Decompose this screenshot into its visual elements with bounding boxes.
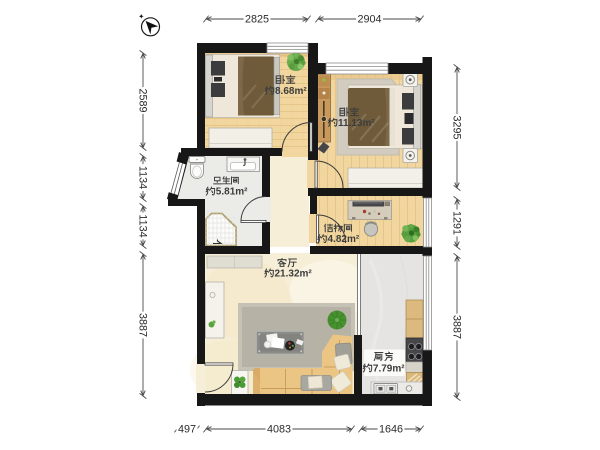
- svg-text:3887: 3887: [136, 313, 148, 337]
- svg-text:5.81m²: 5.81m²: [216, 187, 248, 198]
- svg-text:4.82m²: 4.82m²: [328, 234, 360, 245]
- svg-text:2825: 2825: [245, 14, 269, 26]
- svg-text:4083: 4083: [267, 424, 291, 436]
- svg-text:2589: 2589: [136, 88, 148, 112]
- svg-text:1646: 1646: [379, 424, 403, 436]
- svg-text:7.79m²: 7.79m²: [373, 363, 405, 374]
- svg-text:3887: 3887: [450, 315, 462, 339]
- svg-text:1134: 1134: [136, 166, 148, 189]
- svg-text:2904: 2904: [357, 14, 381, 26]
- svg-text:8.68m²: 8.68m²: [275, 86, 307, 97]
- svg-text:3295: 3295: [450, 115, 462, 139]
- svg-text:1291: 1291: [450, 211, 462, 235]
- svg-text:11.13m²: 11.13m²: [338, 118, 375, 129]
- svg-text:497: 497: [178, 424, 196, 436]
- svg-text:21.32m²: 21.32m²: [275, 268, 313, 279]
- svg-text:1134: 1134: [136, 214, 148, 237]
